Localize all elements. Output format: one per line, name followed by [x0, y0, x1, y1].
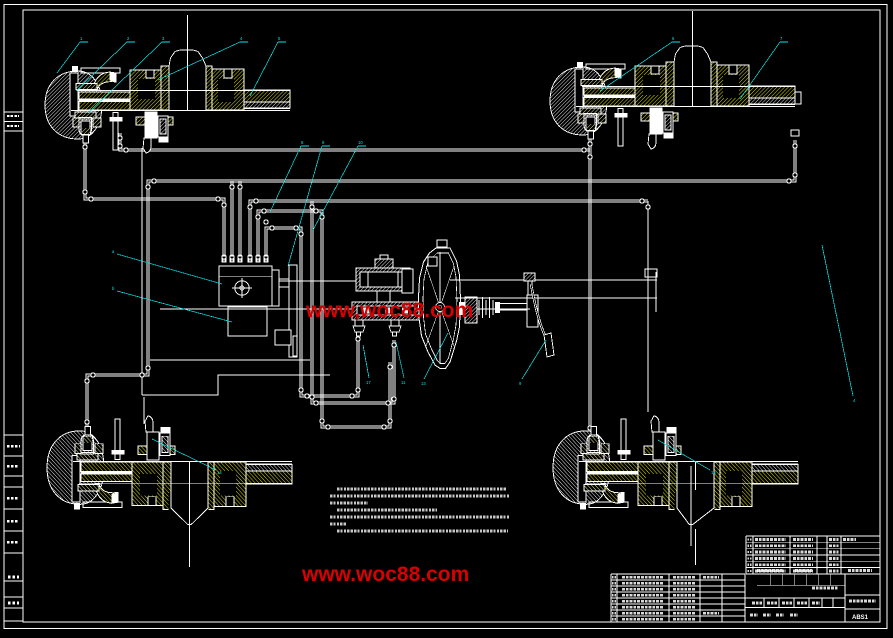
svg-text:ABS1: ABS1	[852, 615, 869, 621]
svg-text:16: 16	[711, 470, 716, 475]
svg-text:www.woc88.com: www.woc88.com	[301, 563, 469, 586]
svg-text:17: 17	[366, 380, 371, 385]
svg-text:14: 14	[217, 470, 222, 475]
svg-text:www,woc88.com: www,woc88.com	[305, 299, 473, 322]
svg-text:11: 11	[401, 380, 406, 385]
svg-text:10: 10	[358, 140, 363, 145]
svg-text:13: 13	[421, 381, 426, 386]
